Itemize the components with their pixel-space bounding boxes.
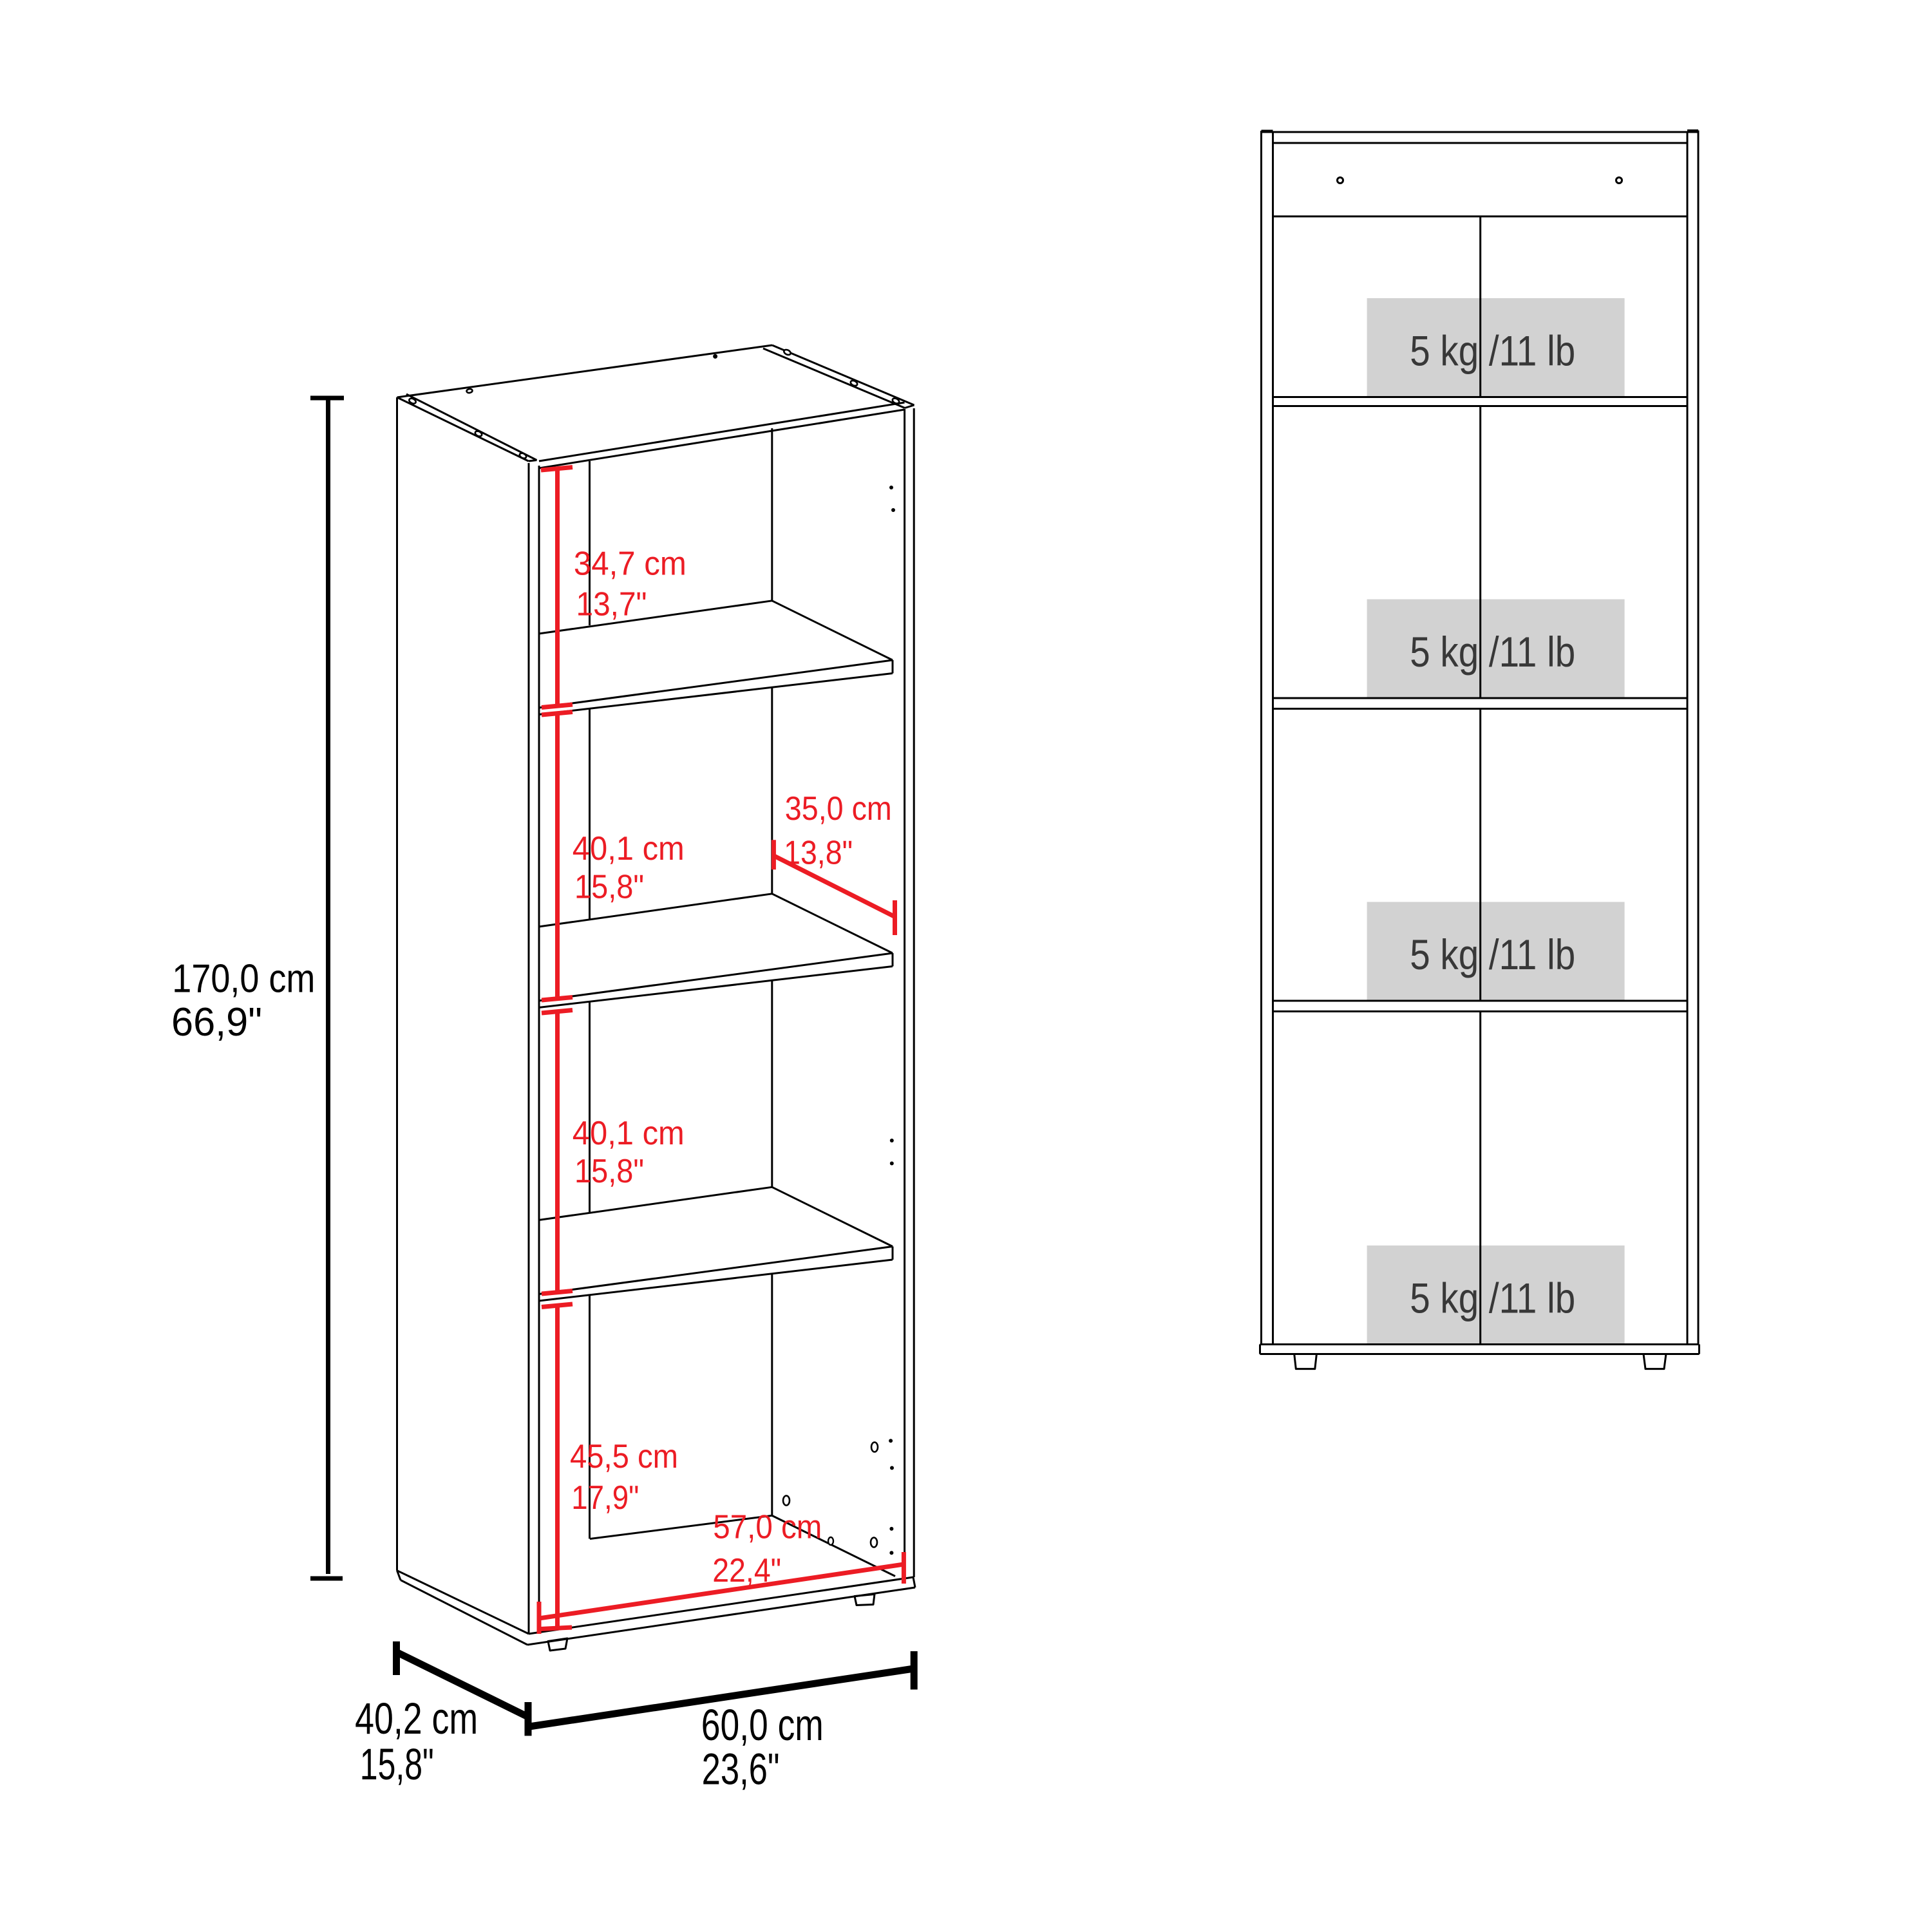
svg-text:34,7 cm: 34,7 cm — [574, 545, 687, 582]
svg-text:15,8": 15,8" — [574, 869, 644, 906]
svg-text:40,2 cm: 40,2 cm — [355, 1694, 478, 1743]
svg-text:60,0 cm: 60,0 cm — [701, 1700, 824, 1750]
svg-text:15,8": 15,8" — [574, 1153, 644, 1190]
svg-text:22,4": 22,4" — [712, 1552, 781, 1589]
svg-text:40,1 cm: 40,1 cm — [573, 830, 685, 867]
svg-text:13,7": 13,7" — [576, 586, 647, 623]
svg-text:15,8": 15,8" — [360, 1739, 434, 1789]
svg-text:5 kg /11 lb: 5 kg /11 lb — [1410, 327, 1575, 374]
svg-text:13,8": 13,8" — [784, 834, 853, 871]
svg-text:5 kg /11 lb: 5 kg /11 lb — [1410, 628, 1575, 676]
svg-text:40,1 cm: 40,1 cm — [573, 1115, 685, 1152]
svg-text:66,9": 66,9" — [171, 1000, 262, 1045]
svg-text:170,0 cm: 170,0 cm — [172, 956, 315, 1001]
svg-text:57,0 cm: 57,0 cm — [713, 1508, 822, 1546]
svg-text:5 kg /11 lb: 5 kg /11 lb — [1410, 1274, 1575, 1321]
svg-text:5 kg /11 lb: 5 kg /11 lb — [1410, 931, 1575, 978]
svg-text:23,6": 23,6" — [702, 1745, 780, 1794]
svg-text:45,5 cm: 45,5 cm — [570, 1438, 678, 1475]
svg-text:35,0 cm: 35,0 cm — [785, 790, 892, 828]
svg-text:17,9": 17,9" — [571, 1479, 639, 1517]
